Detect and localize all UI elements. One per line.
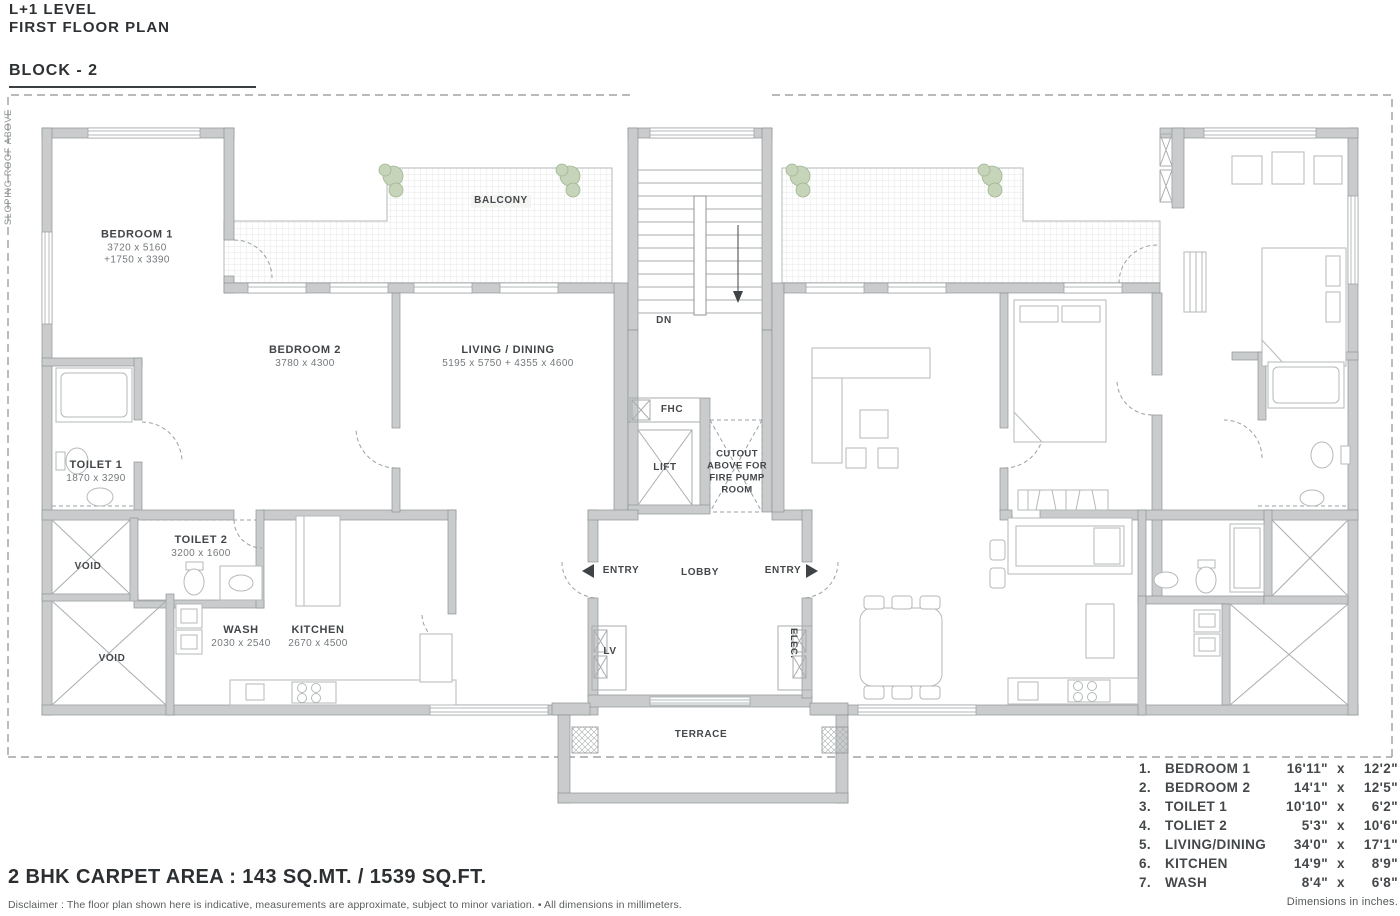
lv-label: LV (603, 646, 616, 659)
entry-arrow-left-icon (582, 564, 594, 578)
entry-right-label: ENTRY (765, 565, 802, 578)
block-title-underline (9, 86, 256, 88)
balcony-hatch (224, 168, 1160, 283)
lobby-label: LOBBY (681, 567, 719, 580)
toilet1-label: TOILET 1 1870 x 3290 (66, 459, 125, 485)
entry-arrow-right-icon (806, 564, 818, 578)
block-title: BLOCK - 2 (9, 62, 98, 80)
living-dining-label: LIVING / DINING 5195 x 5750 + 4355 x 460… (442, 344, 574, 370)
terrace-label: TERRACE (675, 729, 728, 742)
void1-label: VOID (75, 561, 102, 574)
lift-label: LIFT (653, 462, 677, 475)
staircase (638, 170, 762, 315)
legend-row: 2.BEDROOM 214'1"x12'5" (1133, 780, 1400, 799)
legend-row: 6.KITCHEN14'9"x8'9" (1133, 856, 1400, 875)
bedroom1-label: BEDROOM 1 3720 x 5160 +1750 x 3390 (101, 229, 173, 268)
balcony-label: BALCONY (471, 195, 531, 208)
bedroom2-label: BEDROOM 2 3780 x 4300 (269, 344, 341, 370)
fixtures-right-toilets (1154, 362, 1350, 656)
wash-label: WASH 2030 x 2540 (211, 624, 270, 650)
legend-row: 7.WASH8'4"x6'8" (1133, 875, 1400, 894)
kitchen-label: KITCHEN 2670 x 4500 (288, 624, 347, 650)
terrace-pillar (572, 727, 598, 753)
void2-label: VOID (99, 653, 126, 666)
carpet-area-text: 2 BHK CARPET AREA : 143 SQ.MT. / 1539 SQ… (8, 866, 486, 889)
entry-left-label: ENTRY (603, 565, 640, 578)
dimensions-note: Dimensions in inches. (1287, 896, 1398, 908)
sloping-roof-note: SLOPING ROOF ABOVE (3, 109, 13, 225)
legend-row: 3.TOILET 110'10"x6'2" (1133, 799, 1400, 818)
fhc-label: FHC (661, 404, 683, 417)
page-title-plan: FIRST FLOOR PLAN (9, 19, 170, 36)
disclaimer-text: Disclaimer : The floor plan shown here i… (8, 899, 682, 911)
terrace-pillar (822, 727, 848, 753)
cutout-label: CUTOUT ABOVE FOR FIRE PUMP ROOM (707, 448, 767, 496)
elec-label: ELEC. (788, 628, 799, 658)
toilet2-label: TOILET 2 3200 x 1600 (171, 534, 230, 560)
page-title-level: L+1 LEVEL (9, 1, 97, 18)
stair-down-arrow (733, 291, 743, 303)
legend-row: 1.BEDROOM 116'11"x12'2" (1133, 761, 1400, 780)
legend-row: 4.TOLIET 25'3"x10'6" (1133, 818, 1400, 837)
dimension-legend: 1.BEDROOM 116'11"x12'2" 2.BEDROOM 214'1"… (1133, 761, 1400, 894)
legend-row: 5.LIVING/DINING34'0"x17'1" (1133, 837, 1400, 856)
stair-dn-label: DN (656, 315, 672, 328)
